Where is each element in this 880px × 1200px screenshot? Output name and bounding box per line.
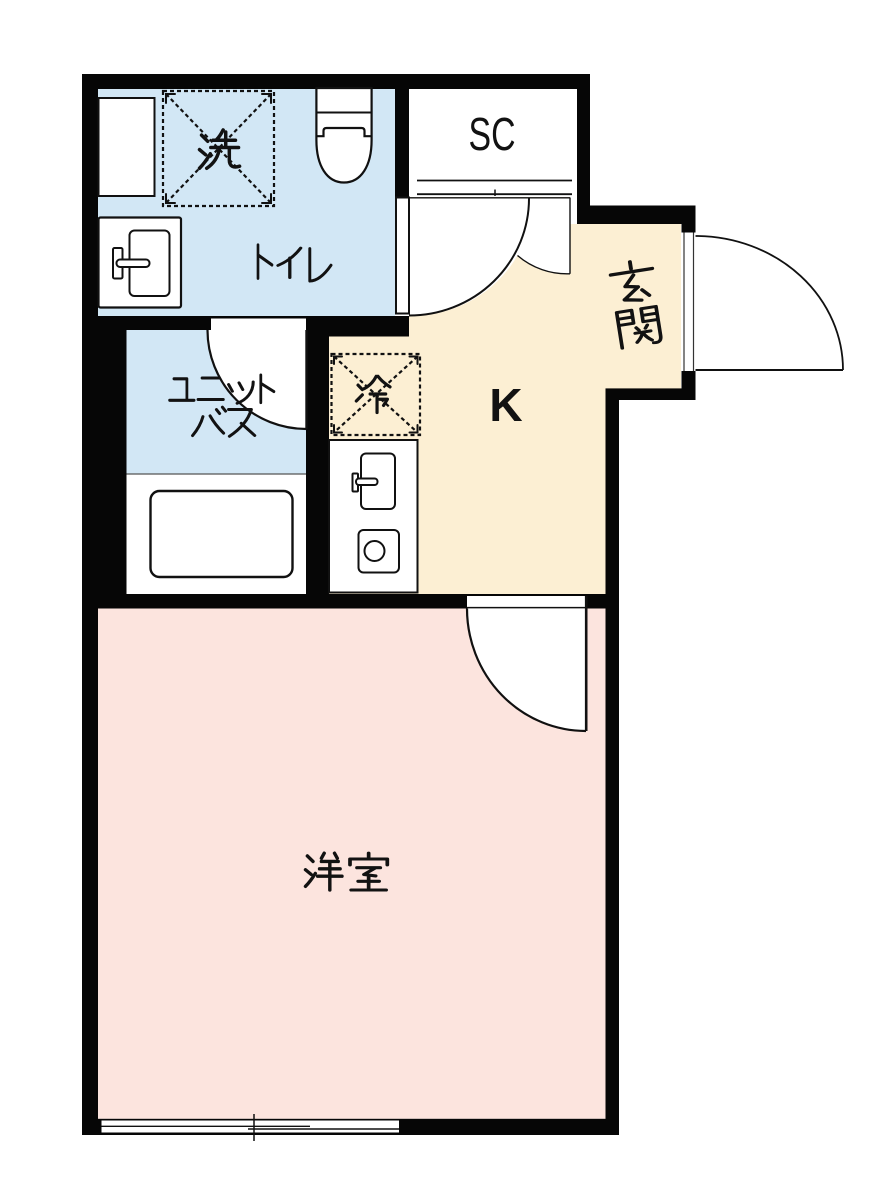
svg-text:K: K — [489, 379, 522, 431]
svg-text:SC: SC — [469, 108, 516, 160]
